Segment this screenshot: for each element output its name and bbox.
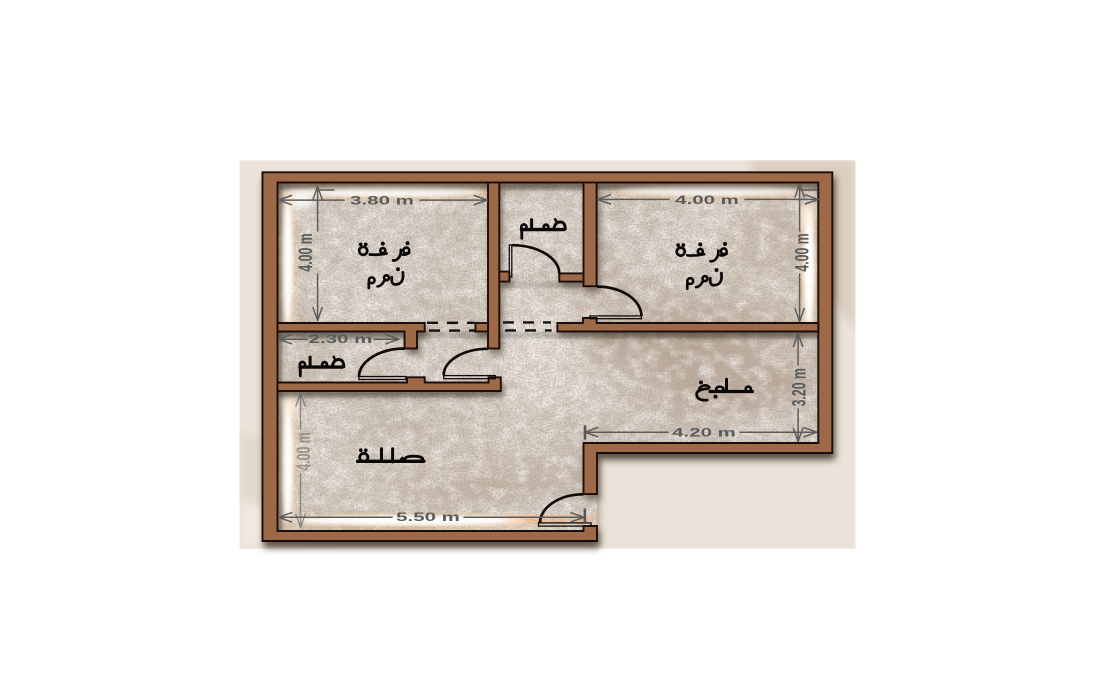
svg-text:4.00 m: 4.00 m [792,233,814,271]
svg-text:3.20 m: 3.20 m [789,368,811,406]
svg-text:3.80 m: 3.80 m [350,194,414,207]
svg-text:2.30 m: 2.30 m [309,333,373,346]
svg-text:4.00 m: 4.00 m [675,194,739,207]
svg-text:5.50 m: 5.50 m [396,511,460,524]
svg-text:4.00 m: 4.00 m [293,432,315,470]
svg-text:4.20 m: 4.20 m [672,426,736,439]
svg-text:4.00 m: 4.00 m [295,233,317,271]
